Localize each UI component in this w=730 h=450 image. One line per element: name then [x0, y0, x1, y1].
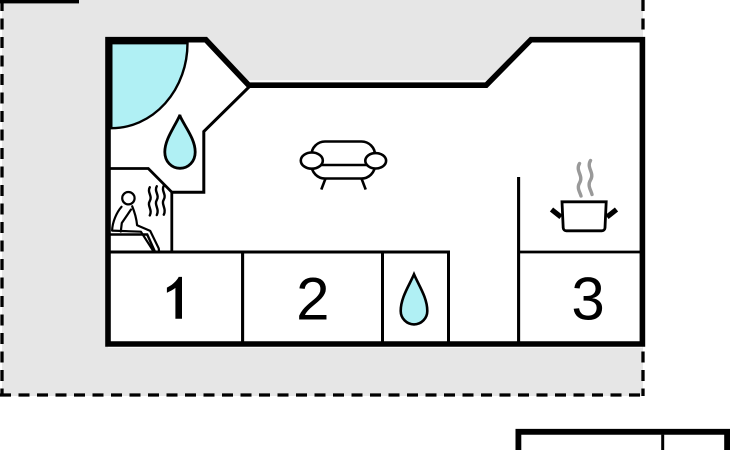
svg-text:2: 2	[296, 265, 329, 332]
svg-text:3: 3	[571, 265, 604, 332]
